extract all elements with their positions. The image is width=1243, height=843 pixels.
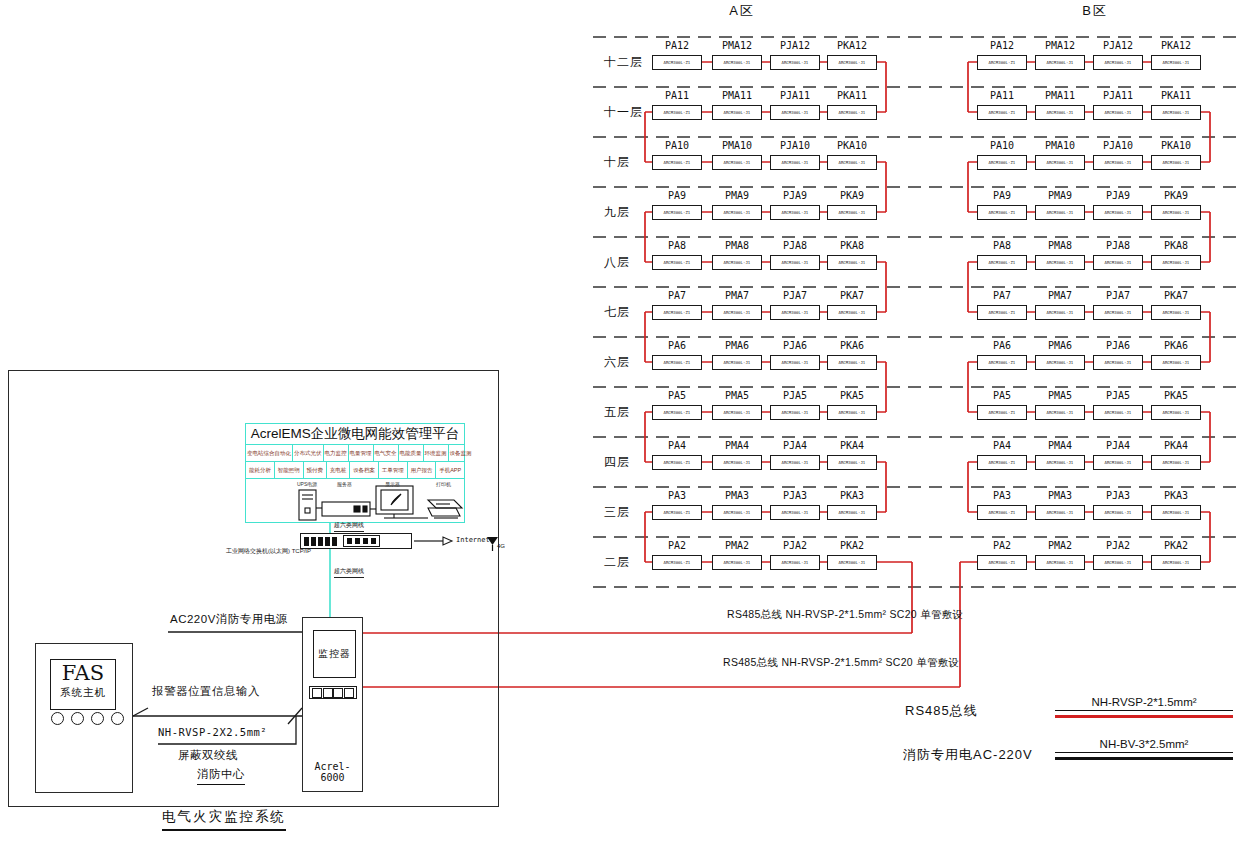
device-label-PMA9-a: PMA9 bbox=[707, 190, 767, 201]
zone-a-title: A区 bbox=[712, 2, 772, 20]
detector-model: ARCM300L-J1 bbox=[782, 160, 809, 165]
device-label-PJA8-b: PJA8 bbox=[1088, 240, 1148, 251]
detector-model: ARCM300L-J1 bbox=[724, 310, 751, 315]
detector-box-PKA9-a: ARCM300L-J1 bbox=[827, 205, 877, 220]
workstation-label-3: 打印机 bbox=[436, 481, 451, 487]
network-switch bbox=[300, 533, 412, 549]
platform-feature-cell: 设备档案 bbox=[350, 462, 379, 478]
device-label-PKA9-b: PKA9 bbox=[1146, 190, 1206, 201]
device-label-PKA8-a: PKA8 bbox=[822, 240, 882, 251]
floor-label-9: 九层 bbox=[604, 204, 630, 221]
workstation-label-1: 服务器 bbox=[337, 481, 352, 487]
platform-feature-row-2: 能耗分析智能照明预付费充电桩设备档案工单管理用户报告手机APP bbox=[246, 462, 464, 479]
detector-box-PA7-b: ARCM300L-Z1 bbox=[977, 305, 1027, 320]
detector-box-PA10-a: ARCM300L-Z1 bbox=[652, 155, 702, 170]
detector-box-PJA2-a: ARCM300L-J1 bbox=[770, 555, 820, 570]
power-supply-label: AC220V消防专用电源 bbox=[170, 612, 288, 627]
detector-box-PMA11-b: ARCM300L-J1 bbox=[1035, 105, 1085, 120]
workstation-label-0: UPS电源 bbox=[297, 481, 317, 487]
detector-box-PA8-a: ARCM300L-Z1 bbox=[652, 255, 702, 270]
detector-box-PMA7-a: ARCM300L-J1 bbox=[712, 305, 762, 320]
cabinet-model-label: Acrel-6000 bbox=[303, 761, 362, 783]
detector-model: ARCM300L-J1 bbox=[782, 510, 809, 515]
detector-model: ARCM300L-J1 bbox=[1047, 560, 1074, 565]
detector-model: ARCM300L-J1 bbox=[1105, 360, 1132, 365]
detector-box-PKA4-a: ARCM300L-J1 bbox=[827, 455, 877, 470]
device-label-PKA8-b: PKA8 bbox=[1146, 240, 1206, 251]
detector-model: ARCM300L-J1 bbox=[782, 210, 809, 215]
detector-box-PJA12-b: ARCM300L-J1 bbox=[1093, 55, 1143, 70]
detector-model: ARCM300L-J1 bbox=[1105, 410, 1132, 415]
device-label-PA3-b: PA3 bbox=[972, 490, 1032, 501]
detector-model: ARCM300L-J1 bbox=[1163, 260, 1190, 265]
device-label-PJA12-a: PJA12 bbox=[765, 40, 825, 51]
platform-feature-cell: 用户报告 bbox=[408, 462, 437, 478]
detector-model: ARCM300L-J1 bbox=[1163, 110, 1190, 115]
detector-box-PMA2-a: ARCM300L-J1 bbox=[712, 555, 762, 570]
device-label-PMA8-b: PMA8 bbox=[1030, 240, 1090, 251]
detector-model: ARCM300L-J1 bbox=[1105, 110, 1132, 115]
switch-label: 工业网络交换机(以太网) TCP/IP bbox=[226, 547, 311, 556]
fas-subtitle: 系统主机 bbox=[51, 686, 115, 700]
cabinet-port bbox=[323, 688, 333, 698]
device-label-PKA9-a: PKA9 bbox=[822, 190, 882, 201]
switch-port bbox=[347, 538, 352, 544]
detector-model: ARCM300L-Z1 bbox=[989, 110, 1016, 115]
detector-model: ARCM300L-J1 bbox=[1163, 160, 1190, 165]
detector-model: ARCM300L-J1 bbox=[1163, 60, 1190, 65]
platform-feature-cell: 电量管理 bbox=[349, 445, 374, 461]
detector-box-PMA3-a: ARCM300L-J1 bbox=[712, 505, 762, 520]
detector-box-PA9-b: ARCM300L-Z1 bbox=[977, 205, 1027, 220]
detector-box-PA2-a: ARCM300L-Z1 bbox=[652, 555, 702, 570]
detector-box-PKA5-b: ARCM300L-J1 bbox=[1151, 405, 1201, 420]
device-label-PJA7-b: PJA7 bbox=[1088, 290, 1148, 301]
device-label-PMA9-b: PMA9 bbox=[1030, 190, 1090, 201]
legend-wire-rs485: NH-RVSP-2*1.5mm² bbox=[1055, 696, 1233, 718]
workstation-label-2: 显示器 bbox=[385, 481, 400, 487]
platform-title: AcrelEMS企业微电网能效管理平台 bbox=[246, 424, 464, 445]
wireless-4g-label: 4G bbox=[497, 543, 505, 549]
platform-feature-cell: 工单管理 bbox=[379, 462, 408, 478]
platform-feature-cell: 分布式光伏 bbox=[293, 445, 324, 461]
device-label-PJA3-a: PJA3 bbox=[765, 490, 825, 501]
detector-box-PMA9-a: ARCM300L-J1 bbox=[712, 205, 762, 220]
detector-box-PKA11-b: ARCM300L-J1 bbox=[1151, 105, 1201, 120]
zone-b-title: B区 bbox=[1065, 2, 1125, 20]
device-label-PA9-b: PA9 bbox=[972, 190, 1032, 201]
detector-box-PA4-a: ARCM300L-Z1 bbox=[652, 455, 702, 470]
device-label-PMA4-a: PMA4 bbox=[707, 440, 767, 451]
detector-model: ARCM300L-J1 bbox=[839, 110, 866, 115]
electrical-fire-monitoring-diagram: 十二层十一层十层九层八层七层六层五层四层三层二层PA12ARCM300L-Z1P… bbox=[0, 0, 1243, 843]
device-label-PA10-a: PA10 bbox=[647, 140, 707, 151]
detector-model: ARCM300L-J1 bbox=[1105, 210, 1132, 215]
device-label-PJA8-a: PJA8 bbox=[765, 240, 825, 251]
detector-box-PJA11-b: ARCM300L-J1 bbox=[1093, 105, 1143, 120]
detector-box-PMA5-a: ARCM300L-J1 bbox=[712, 405, 762, 420]
floor-label-6: 六层 bbox=[604, 354, 630, 371]
device-label-PJA4-b: PJA4 bbox=[1088, 440, 1148, 451]
device-label-PKA5-a: PKA5 bbox=[822, 390, 882, 401]
detector-model: ARCM300L-J1 bbox=[724, 210, 751, 215]
detector-box-PMA8-a: ARCM300L-J1 bbox=[712, 255, 762, 270]
fas-title: FAS bbox=[51, 660, 115, 686]
detector-box-PKA8-b: ARCM300L-J1 bbox=[1151, 255, 1201, 270]
detector-model: ARCM300L-J1 bbox=[1047, 110, 1074, 115]
detector-box-PA7-a: ARCM300L-Z1 bbox=[652, 305, 702, 320]
device-label-PKA11-a: PKA11 bbox=[822, 90, 882, 101]
system-title: 电气火灾监控系统 bbox=[162, 808, 286, 831]
detector-model: ARCM300L-J1 bbox=[782, 560, 809, 565]
detector-model: ARCM300L-J1 bbox=[782, 460, 809, 465]
device-label-PJA6-a: PJA6 bbox=[765, 340, 825, 351]
detector-box-PKA12-b: ARCM300L-J1 bbox=[1151, 55, 1201, 70]
detector-box-PKA4-b: ARCM300L-J1 bbox=[1151, 455, 1201, 470]
platform-feature-cell: 电力监控 bbox=[324, 445, 349, 461]
floor-label-5: 五层 bbox=[604, 404, 630, 421]
device-label-PMA7-a: PMA7 bbox=[707, 290, 767, 301]
detector-model: ARCM300L-J1 bbox=[1163, 360, 1190, 365]
detector-model: ARCM300L-Z1 bbox=[664, 560, 691, 565]
detector-box-PMA10-a: ARCM300L-J1 bbox=[712, 155, 762, 170]
platform-feature-cell: 智能照明 bbox=[275, 462, 304, 478]
detector-box-PJA3-a: ARCM300L-J1 bbox=[770, 505, 820, 520]
detector-model: ARCM300L-Z1 bbox=[664, 110, 691, 115]
indicator-light bbox=[111, 712, 124, 725]
detector-box-PA2-b: ARCM300L-Z1 bbox=[977, 555, 1027, 570]
detector-box-PKA2-b: ARCM300L-J1 bbox=[1151, 555, 1201, 570]
detector-model: ARCM300L-J1 bbox=[1047, 60, 1074, 65]
detector-model: ARCM300L-J1 bbox=[839, 460, 866, 465]
alarm-input-label: 报警器位置信息输入 bbox=[152, 684, 260, 699]
detector-box-PKA9-b: ARCM300L-J1 bbox=[1151, 205, 1201, 220]
device-label-PMA7-b: PMA7 bbox=[1030, 290, 1090, 301]
detector-model: ARCM300L-Z1 bbox=[989, 410, 1016, 415]
device-label-PA11-a: PA11 bbox=[647, 90, 707, 101]
detector-model: ARCM300L-J1 bbox=[1047, 360, 1074, 365]
detector-box-PKA7-b: ARCM300L-J1 bbox=[1151, 305, 1201, 320]
device-label-PJA2-b: PJA2 bbox=[1088, 540, 1148, 551]
device-label-PMA2-a: PMA2 bbox=[707, 540, 767, 551]
device-label-PKA12-b: PKA12 bbox=[1146, 40, 1206, 51]
device-label-PKA2-a: PKA2 bbox=[822, 540, 882, 551]
detector-model: ARCM300L-J1 bbox=[839, 210, 866, 215]
device-label-PJA11-b: PJA11 bbox=[1088, 90, 1148, 101]
detector-model: ARCM300L-J1 bbox=[1163, 210, 1190, 215]
device-label-PKA7-b: PKA7 bbox=[1146, 290, 1206, 301]
device-label-PMA6-a: PMA6 bbox=[707, 340, 767, 351]
detector-box-PA12-b: ARCM300L-Z1 bbox=[977, 55, 1027, 70]
detector-box-PJA5-a: ARCM300L-J1 bbox=[770, 405, 820, 420]
switch-port bbox=[371, 538, 376, 544]
floor-label-12: 十二层 bbox=[604, 54, 643, 71]
platform-feature-cell: 电气安全 bbox=[374, 445, 399, 461]
device-label-PA7-a: PA7 bbox=[647, 290, 707, 301]
device-label-PA4-b: PA4 bbox=[972, 440, 1032, 451]
fas-inner-box: FAS 系统主机 bbox=[50, 659, 116, 710]
platform-feature-cell: 设备监测 bbox=[449, 445, 473, 461]
detector-model: ARCM300L-Z1 bbox=[664, 410, 691, 415]
detector-box-PA10-b: ARCM300L-Z1 bbox=[977, 155, 1027, 170]
device-label-PMA11-a: PMA11 bbox=[707, 90, 767, 101]
platform-feature-row-1: 变电站综合自动化分布式光伏电力监控电量管理电气安全电能质量环境监测设备监测 bbox=[246, 445, 464, 462]
device-label-PA12-b: PA12 bbox=[972, 40, 1032, 51]
internet-label: Internet bbox=[456, 536, 490, 544]
switch-port bbox=[304, 537, 309, 546]
detector-box-PKA3-a: ARCM300L-J1 bbox=[827, 505, 877, 520]
device-label-PKA4-a: PKA4 bbox=[822, 440, 882, 451]
shielded-pair-label: 屏蔽双绞线 bbox=[178, 748, 238, 763]
device-label-PKA10-a: PKA10 bbox=[822, 140, 882, 151]
detector-model: ARCM300L-J1 bbox=[782, 110, 809, 115]
detector-model: ARCM300L-J1 bbox=[782, 260, 809, 265]
detector-box-PKA11-a: ARCM300L-J1 bbox=[827, 105, 877, 120]
detector-box-PMA12-b: ARCM300L-J1 bbox=[1035, 55, 1085, 70]
device-label-PKA12-a: PKA12 bbox=[822, 40, 882, 51]
device-label-PJA7-a: PJA7 bbox=[765, 290, 825, 301]
detector-model: ARCM300L-J1 bbox=[839, 310, 866, 315]
detector-model: ARCM300L-J1 bbox=[1163, 510, 1190, 515]
detector-box-PKA7-a: ARCM300L-J1 bbox=[827, 305, 877, 320]
switch-port bbox=[332, 537, 337, 546]
platform-feature-cell: 电能质量 bbox=[399, 445, 424, 461]
device-label-PJA2-a: PJA2 bbox=[765, 540, 825, 551]
detector-model: ARCM300L-J1 bbox=[839, 560, 866, 565]
cabinet-monitor-screen: 监控器 bbox=[313, 630, 356, 678]
device-label-PKA3-b: PKA3 bbox=[1146, 490, 1206, 501]
detector-model: ARCM300L-J1 bbox=[1105, 510, 1132, 515]
detector-model: ARCM300L-J1 bbox=[1163, 560, 1190, 565]
detector-box-PMA4-a: ARCM300L-J1 bbox=[712, 455, 762, 470]
detector-box-PKA10-a: ARCM300L-J1 bbox=[827, 155, 877, 170]
detector-model: ARCM300L-J1 bbox=[839, 60, 866, 65]
device-label-PJA9-b: PJA9 bbox=[1088, 190, 1148, 201]
detector-model: ARCM300L-J1 bbox=[839, 160, 866, 165]
detector-model: ARCM300L-Z1 bbox=[664, 310, 691, 315]
detector-model: ARCM300L-J1 bbox=[1105, 160, 1132, 165]
floor-label-7: 七层 bbox=[604, 304, 630, 321]
switch-port bbox=[325, 537, 330, 546]
detector-box-PMA7-b: ARCM300L-J1 bbox=[1035, 305, 1085, 320]
detector-box-PA6-b: ARCM300L-Z1 bbox=[977, 355, 1027, 370]
detector-box-PA8-b: ARCM300L-Z1 bbox=[977, 255, 1027, 270]
detector-model: ARCM300L-J1 bbox=[1047, 310, 1074, 315]
floor-label-8: 八层 bbox=[604, 254, 630, 271]
detector-box-PA4-b: ARCM300L-Z1 bbox=[977, 455, 1027, 470]
device-label-PA8-b: PA8 bbox=[972, 240, 1032, 251]
device-label-PJA10-b: PJA10 bbox=[1088, 140, 1148, 151]
device-label-PA4-a: PA4 bbox=[647, 440, 707, 451]
device-label-PA6-b: PA6 bbox=[972, 340, 1032, 351]
cable-spec-label: NH-RVSP-2X2.5mm² bbox=[158, 726, 267, 738]
floor-label-11: 十一层 bbox=[604, 104, 643, 121]
detector-model: ARCM300L-Z1 bbox=[989, 160, 1016, 165]
device-label-PJA10-a: PJA10 bbox=[765, 140, 825, 151]
detector-box-PMA11-a: ARCM300L-J1 bbox=[712, 105, 762, 120]
device-label-PA5-a: PA5 bbox=[647, 390, 707, 401]
device-label-PA7-b: PA7 bbox=[972, 290, 1032, 301]
platform-feature-cell: 充电桩 bbox=[327, 462, 350, 478]
device-label-PMA3-a: PMA3 bbox=[707, 490, 767, 501]
device-label-PKA3-a: PKA3 bbox=[822, 490, 882, 501]
cabinet-port bbox=[312, 688, 322, 698]
switch-port bbox=[311, 537, 316, 546]
platform-feature-cell: 手机APP bbox=[436, 462, 464, 478]
platform-feature-cell: 预付费 bbox=[304, 462, 327, 478]
device-label-PA10-b: PA10 bbox=[972, 140, 1032, 151]
detector-box-PJA7-b: ARCM300L-J1 bbox=[1093, 305, 1143, 320]
switch-port-group bbox=[343, 535, 380, 547]
detector-box-PJA4-a: ARCM300L-J1 bbox=[770, 455, 820, 470]
cabinet-port bbox=[333, 688, 343, 698]
detector-model: ARCM300L-J1 bbox=[724, 510, 751, 515]
device-label-PA8-a: PA8 bbox=[647, 240, 707, 251]
device-label-PMA6-b: PMA6 bbox=[1030, 340, 1090, 351]
detector-box-PA5-b: ARCM300L-Z1 bbox=[977, 405, 1027, 420]
detector-model: ARCM300L-Z1 bbox=[989, 60, 1016, 65]
detector-box-PA5-a: ARCM300L-Z1 bbox=[652, 405, 702, 420]
device-label-PMA8-a: PMA8 bbox=[707, 240, 767, 251]
detector-model: ARCM300L-Z1 bbox=[989, 260, 1016, 265]
detector-box-PA3-b: ARCM300L-Z1 bbox=[977, 505, 1027, 520]
fas-host-box: FAS 系统主机 bbox=[35, 643, 133, 793]
detector-box-PA12-a: ARCM300L-Z1 bbox=[652, 55, 702, 70]
detector-box-PMA9-b: ARCM300L-J1 bbox=[1035, 205, 1085, 220]
legend-label-rs485: RS485总线 bbox=[905, 702, 978, 720]
detector-box-PKA2-a: ARCM300L-J1 bbox=[827, 555, 877, 570]
device-label-PMA3-b: PMA3 bbox=[1030, 490, 1090, 501]
detector-model: ARCM300L-J1 bbox=[1047, 510, 1074, 515]
device-label-PMA5-a: PMA5 bbox=[707, 390, 767, 401]
detector-model: ARCM300L-J1 bbox=[1105, 260, 1132, 265]
detector-model: ARCM300L-J1 bbox=[782, 360, 809, 365]
detector-box-PA6-a: ARCM300L-Z1 bbox=[652, 355, 702, 370]
detector-model: ARCM300L-J1 bbox=[724, 460, 751, 465]
device-label-PKA7-a: PKA7 bbox=[822, 290, 882, 301]
detector-model: ARCM300L-J1 bbox=[1105, 560, 1132, 565]
detector-model: ARCM300L-Z1 bbox=[989, 460, 1016, 465]
detector-box-PJA10-a: ARCM300L-J1 bbox=[770, 155, 820, 170]
detector-model: ARCM300L-Z1 bbox=[989, 210, 1016, 215]
detector-box-PMA6-b: ARCM300L-J1 bbox=[1035, 355, 1085, 370]
device-label-PMA12-a: PMA12 bbox=[707, 40, 767, 51]
device-label-PA11-b: PA11 bbox=[972, 90, 1032, 101]
detector-box-PA11-a: ARCM300L-Z1 bbox=[652, 105, 702, 120]
fire-center-label: 消防中心 bbox=[197, 767, 245, 785]
detector-model: ARCM300L-Z1 bbox=[664, 60, 691, 65]
detector-model: ARCM300L-Z1 bbox=[664, 360, 691, 365]
device-label-PJA12-b: PJA12 bbox=[1088, 40, 1148, 51]
device-label-PA2-b: PA2 bbox=[972, 540, 1032, 551]
detector-box-PJA8-a: ARCM300L-J1 bbox=[770, 255, 820, 270]
detector-model: ARCM300L-J1 bbox=[724, 260, 751, 265]
device-label-PKA5-b: PKA5 bbox=[1146, 390, 1206, 401]
detector-box-PKA6-a: ARCM300L-J1 bbox=[827, 355, 877, 370]
device-label-PA6-a: PA6 bbox=[647, 340, 707, 351]
detector-model: ARCM300L-J1 bbox=[724, 410, 751, 415]
device-label-PKA6-b: PKA6 bbox=[1146, 340, 1206, 351]
bus-spec-label-b: RS485总线 NH-RVSP-2*1.5mm² SC20 单管敷设 bbox=[723, 656, 959, 670]
device-label-PA9-a: PA9 bbox=[647, 190, 707, 201]
legend-wire-sample-black bbox=[1055, 757, 1233, 760]
cable-label-bottom: 超六类网线 bbox=[334, 567, 364, 578]
device-label-PJA11-a: PJA11 bbox=[765, 90, 825, 101]
detector-model: ARCM300L-Z1 bbox=[989, 310, 1016, 315]
device-label-PA3-a: PA3 bbox=[647, 490, 707, 501]
cable-label-top: 超六类网线 bbox=[334, 521, 364, 532]
detector-box-PJA6-a: ARCM300L-J1 bbox=[770, 355, 820, 370]
detector-model: ARCM300L-J1 bbox=[1047, 410, 1074, 415]
device-label-PMA12-b: PMA12 bbox=[1030, 40, 1090, 51]
detector-model: ARCM300L-J1 bbox=[1047, 460, 1074, 465]
detector-model: ARCM300L-Z1 bbox=[664, 460, 691, 465]
device-label-PKA11-b: PKA11 bbox=[1146, 90, 1206, 101]
detector-model: ARCM300L-J1 bbox=[724, 160, 751, 165]
detector-model: ARCM300L-Z1 bbox=[664, 510, 691, 515]
detector-box-PJA3-b: ARCM300L-J1 bbox=[1093, 505, 1143, 520]
switch-port bbox=[318, 537, 323, 546]
device-label-PA12-a: PA12 bbox=[647, 40, 707, 51]
acrel6000-cabinet: 监控器 Acrel-6000 bbox=[302, 617, 363, 792]
detector-model: ARCM300L-J1 bbox=[1163, 460, 1190, 465]
detector-box-PJA5-b: ARCM300L-J1 bbox=[1093, 405, 1143, 420]
device-label-PKA6-a: PKA6 bbox=[822, 340, 882, 351]
detector-box-PMA2-b: ARCM300L-J1 bbox=[1035, 555, 1085, 570]
detector-model: ARCM300L-J1 bbox=[724, 110, 751, 115]
detector-model: ARCM300L-J1 bbox=[724, 560, 751, 565]
detector-box-PMA12-a: ARCM300L-J1 bbox=[712, 55, 762, 70]
device-label-PJA5-a: PJA5 bbox=[765, 390, 825, 401]
detector-model: ARCM300L-J1 bbox=[1047, 160, 1074, 165]
detector-box-PMA6-a: ARCM300L-J1 bbox=[712, 355, 762, 370]
indicator-light bbox=[71, 712, 84, 725]
detector-box-PMA4-b: ARCM300L-J1 bbox=[1035, 455, 1085, 470]
detector-box-PMA8-b: ARCM300L-J1 bbox=[1035, 255, 1085, 270]
legend-label-power: 消防专用电AC-220V bbox=[903, 746, 1033, 764]
detector-model: ARCM300L-J1 bbox=[1105, 460, 1132, 465]
bus-spec-label-a: RS485总线 NH-RVSP-2*1.5mm² SC20 单管敷设 bbox=[727, 608, 963, 622]
detector-model: ARCM300L-Z1 bbox=[989, 360, 1016, 365]
detector-box-PJA9-b: ARCM300L-J1 bbox=[1093, 205, 1143, 220]
device-label-PMA11-b: PMA11 bbox=[1030, 90, 1090, 101]
detector-model: ARCM300L-J1 bbox=[839, 360, 866, 365]
detector-box-PJA11-a: ARCM300L-J1 bbox=[770, 105, 820, 120]
detector-model: ARCM300L-J1 bbox=[1105, 60, 1132, 65]
device-label-PJA6-b: PJA6 bbox=[1088, 340, 1148, 351]
legend-wire-sample-red bbox=[1055, 715, 1233, 718]
detector-box-PKA6-b: ARCM300L-J1 bbox=[1151, 355, 1201, 370]
cabinet-port bbox=[344, 688, 354, 698]
detector-model: ARCM300L-J1 bbox=[839, 410, 866, 415]
detector-box-PJA6-b: ARCM300L-J1 bbox=[1093, 355, 1143, 370]
detector-model: ARCM300L-J1 bbox=[1105, 310, 1132, 315]
detector-box-PMA3-b: ARCM300L-J1 bbox=[1035, 505, 1085, 520]
detector-model: ARCM300L-Z1 bbox=[664, 160, 691, 165]
detector-model: ARCM300L-J1 bbox=[724, 360, 751, 365]
detector-box-PJA4-b: ARCM300L-J1 bbox=[1093, 455, 1143, 470]
detector-box-PA9-a: ARCM300L-Z1 bbox=[652, 205, 702, 220]
detector-model: ARCM300L-Z1 bbox=[664, 210, 691, 215]
detector-box-PJA12-a: ARCM300L-J1 bbox=[770, 55, 820, 70]
detector-model: ARCM300L-J1 bbox=[724, 60, 751, 65]
detector-model: ARCM300L-Z1 bbox=[989, 510, 1016, 515]
device-label-PJA4-a: PJA4 bbox=[765, 440, 825, 451]
cabinet-ports bbox=[309, 686, 357, 699]
detector-box-PKA12-a: ARCM300L-J1 bbox=[827, 55, 877, 70]
detector-box-PMA5-b: ARCM300L-J1 bbox=[1035, 405, 1085, 420]
device-label-PMA10-b: PMA10 bbox=[1030, 140, 1090, 151]
